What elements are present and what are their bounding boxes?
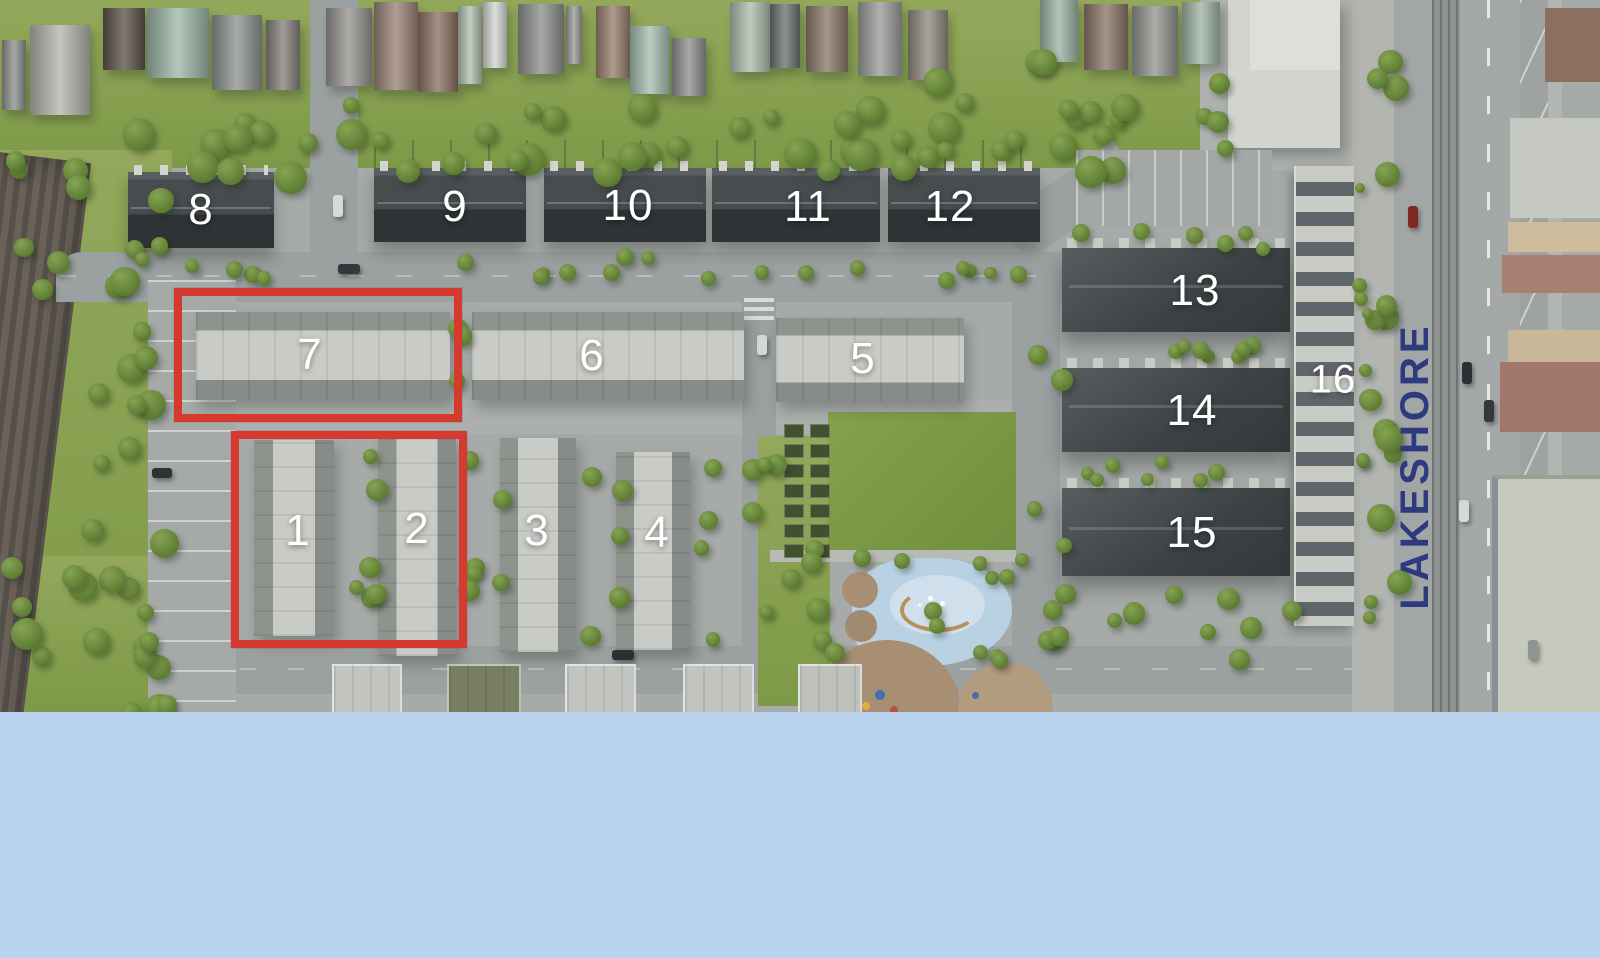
tree (559, 264, 576, 281)
tree (1107, 613, 1122, 628)
garden-plot (784, 524, 804, 538)
tree (99, 566, 126, 593)
south-building (798, 664, 862, 712)
tree (1093, 125, 1113, 145)
tree (1059, 100, 1077, 118)
park-lawn (828, 412, 1016, 558)
car (1528, 640, 1538, 660)
tree (298, 133, 318, 153)
existing-house (458, 6, 482, 84)
tree (603, 264, 620, 281)
tree (1352, 278, 1367, 293)
car (1484, 400, 1494, 422)
tree (1375, 162, 1400, 187)
tree (759, 605, 773, 619)
south-building (565, 664, 636, 712)
tree (1359, 389, 1381, 411)
tree (475, 123, 496, 144)
tree (1111, 94, 1138, 121)
existing-house (2, 40, 26, 110)
playground-equipment (875, 690, 885, 700)
site-plan-page: LAKESHORE 12345678910111213141516 WESTSH… (0, 0, 1600, 958)
tree (1229, 649, 1249, 669)
existing-house (374, 2, 418, 90)
tree (88, 383, 110, 405)
tree (1010, 266, 1026, 282)
tree (729, 117, 750, 138)
tree (582, 467, 602, 487)
tree (1075, 156, 1107, 188)
block-11-label: 11 (784, 182, 832, 232)
east-internal-street (1012, 252, 1060, 692)
commercial-building-north-upper (1250, 0, 1340, 70)
tree (850, 260, 866, 276)
tree (1155, 455, 1169, 469)
tree (825, 643, 845, 663)
tree (274, 162, 306, 194)
garden-plot (784, 424, 804, 438)
tree (834, 111, 860, 137)
tree (704, 459, 722, 477)
tree (1005, 130, 1024, 149)
garden-plot (810, 504, 830, 518)
car (612, 650, 634, 660)
block-1-label: 1 (285, 506, 310, 556)
tree (742, 502, 763, 523)
tree (32, 646, 52, 666)
car (1459, 500, 1469, 522)
tree (938, 272, 955, 289)
tree (1031, 49, 1057, 75)
phase1-outline-blocks-1-2 (231, 431, 467, 648)
south-building (447, 664, 521, 712)
tree (845, 138, 878, 171)
tree (701, 271, 716, 286)
car (757, 335, 767, 355)
tree (1355, 183, 1365, 193)
tree (11, 618, 43, 650)
block-15-label: 15 (1167, 508, 1218, 558)
playground-equipment (940, 601, 945, 606)
tree (929, 618, 945, 634)
east-building-1 (1545, 8, 1600, 82)
tree (784, 138, 816, 170)
lakeshore-street-label: LAKESHORE (1394, 301, 1436, 631)
south-building (683, 664, 754, 712)
tree (32, 279, 53, 300)
tree (1362, 308, 1373, 319)
tree (533, 269, 549, 285)
tree (133, 322, 152, 341)
playground-equipment (862, 702, 870, 710)
building-block-6 (472, 312, 744, 400)
tree (985, 571, 999, 585)
tree (47, 251, 70, 274)
south-building (332, 664, 402, 712)
garden-plot (810, 524, 830, 538)
tree (492, 574, 509, 591)
tree (14, 238, 34, 258)
garden-plot (784, 544, 804, 558)
existing-house (566, 6, 582, 64)
garden-plot (784, 464, 804, 478)
block-16-label: 16 (1310, 358, 1357, 403)
existing-house (212, 15, 262, 90)
tree (798, 265, 814, 281)
block-12-label: 12 (925, 182, 976, 232)
block-3-label: 3 (524, 506, 549, 556)
tree (396, 159, 420, 183)
existing-house (806, 6, 848, 72)
tree (442, 152, 465, 175)
tree (924, 602, 942, 620)
car (333, 195, 343, 217)
legend-footer: WESTSH RE AT LONG BRANCH BLOCK 1 -7 HYBR… (0, 712, 1600, 958)
existing-house (418, 12, 458, 92)
tree (817, 159, 839, 181)
garden-plot (810, 464, 830, 478)
tree (1056, 538, 1071, 553)
tree (611, 527, 629, 545)
existing-house (147, 8, 209, 78)
existing-house (596, 6, 630, 78)
existing-house (483, 2, 507, 68)
block-5-label: 5 (850, 334, 875, 384)
block-7-label: 7 (297, 330, 322, 380)
garden-plot (784, 484, 804, 498)
tree (1356, 453, 1370, 467)
tree (157, 695, 177, 712)
tree (62, 565, 86, 589)
tree (110, 267, 139, 296)
existing-house (30, 25, 90, 115)
tree (540, 106, 565, 131)
existing-house (730, 2, 770, 72)
tree (618, 142, 647, 171)
tree (217, 158, 244, 185)
garden-plot (810, 444, 830, 458)
existing-house (1132, 6, 1178, 76)
block-9-label: 9 (442, 182, 467, 232)
existing-house (672, 38, 706, 96)
block-10-label: 10 (603, 181, 654, 231)
tree (148, 188, 174, 214)
tree (1240, 617, 1262, 639)
tree (118, 437, 141, 460)
block-2-label: 2 (404, 504, 429, 554)
tree (992, 652, 1008, 668)
tree (187, 151, 219, 183)
tree (226, 261, 243, 278)
tree (127, 395, 146, 414)
tree (336, 119, 367, 150)
tree (457, 254, 474, 271)
tree (1177, 339, 1191, 353)
existing-house (858, 2, 902, 76)
tree (806, 598, 830, 622)
block-13-label: 13 (1170, 266, 1221, 316)
tree (1217, 588, 1240, 611)
tree (1051, 369, 1073, 391)
tree (1217, 235, 1234, 252)
tree (224, 125, 251, 152)
tree (694, 540, 710, 556)
lakeshore-lane-dashes (1487, 0, 1490, 712)
existing-house (1084, 4, 1128, 70)
block-14-label: 14 (1167, 386, 1218, 436)
tree (973, 556, 987, 570)
garden-plot (810, 484, 830, 498)
tree (1192, 341, 1210, 359)
tree (1200, 624, 1216, 640)
tree (616, 248, 634, 266)
block-8-label: 8 (188, 185, 213, 235)
tree (1165, 586, 1183, 604)
existing-house (266, 20, 300, 90)
tree (6, 151, 25, 170)
playground-equipment (928, 596, 933, 601)
tree (1367, 504, 1395, 532)
tree (1049, 133, 1077, 161)
tree (1027, 501, 1043, 517)
block-4-label: 4 (644, 508, 669, 558)
existing-house (630, 26, 670, 94)
car (152, 468, 172, 478)
park-plaza-1 (842, 572, 878, 608)
east-building-5 (1508, 330, 1600, 362)
tree (628, 94, 657, 123)
tree (801, 552, 822, 573)
tree (135, 252, 149, 266)
existing-house (770, 4, 800, 68)
tree (1256, 242, 1270, 256)
tree (781, 569, 800, 588)
block-6-label: 6 (579, 331, 604, 381)
tree (1123, 602, 1145, 624)
crosswalk (744, 298, 774, 324)
tree (343, 97, 359, 113)
garden-plot (810, 424, 830, 438)
tree (1141, 473, 1154, 486)
garden-plot (784, 444, 804, 458)
existing-house (518, 4, 564, 74)
east-building-6 (1500, 362, 1600, 432)
tree (151, 237, 169, 255)
tree (81, 519, 103, 541)
playground-equipment (918, 603, 922, 607)
tree (1207, 111, 1229, 133)
tree (755, 265, 770, 280)
park-plaza-2 (845, 610, 877, 642)
tree (1209, 73, 1230, 94)
tree (853, 549, 871, 567)
existing-house (326, 8, 372, 86)
tree (1090, 473, 1104, 487)
tree (928, 112, 960, 144)
existing-house (103, 8, 145, 70)
tree (1105, 458, 1120, 473)
existing-house (1182, 2, 1220, 64)
east-building-4 (1502, 255, 1600, 293)
east-building-7 (1492, 475, 1600, 712)
car (1462, 362, 1472, 384)
east-building-2 (1510, 118, 1600, 218)
tree (763, 109, 779, 125)
tree (1367, 68, 1388, 89)
tree (706, 632, 721, 647)
tree (955, 93, 974, 112)
tree (580, 626, 600, 646)
aerial-site-plan: LAKESHORE 12345678910111213141516 (0, 0, 1600, 712)
east-building-3 (1508, 222, 1600, 252)
tree (150, 529, 179, 558)
playground-equipment (972, 692, 979, 699)
tree (1043, 600, 1064, 621)
tree (1354, 292, 1368, 306)
tree (257, 271, 272, 286)
tree (1049, 626, 1069, 646)
tree (1186, 227, 1202, 243)
garden-plot (784, 504, 804, 518)
tree (123, 118, 155, 150)
car (338, 264, 360, 274)
car (1408, 206, 1418, 228)
tree (699, 511, 717, 529)
